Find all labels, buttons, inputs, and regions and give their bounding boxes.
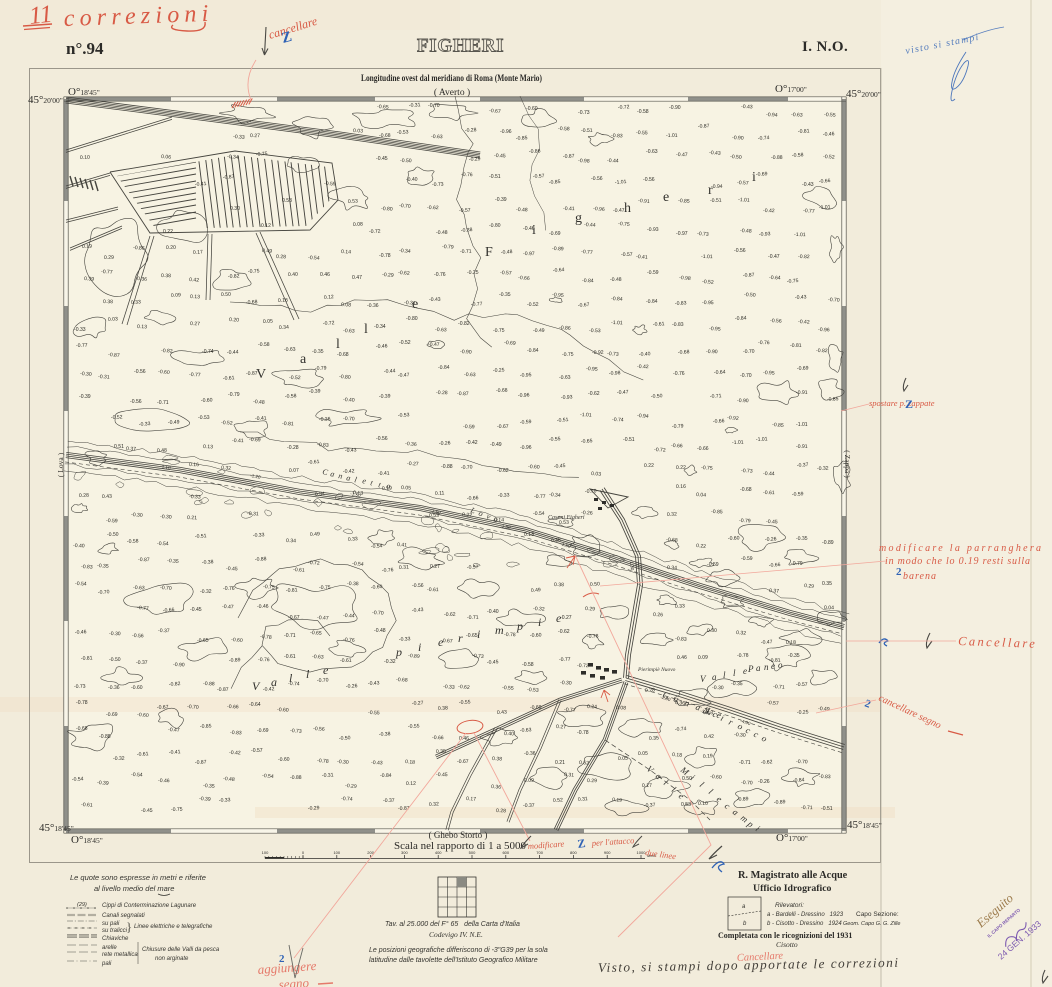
svg-text:-0.31: -0.31 bbox=[98, 374, 110, 381]
svg-text:-0.60: -0.60 bbox=[137, 712, 149, 719]
svg-text:-0.54: -0.54 bbox=[131, 772, 143, 778]
svg-text:-0.70: -0.70 bbox=[740, 373, 752, 379]
svg-text:-1.01: -1.01 bbox=[796, 422, 808, 428]
svg-text:-0.84: -0.84 bbox=[793, 777, 805, 784]
svg-text:0.37: 0.37 bbox=[126, 446, 136, 453]
svg-text:-0.71: -0.71 bbox=[739, 760, 751, 766]
svg-text:-0.70: -0.70 bbox=[98, 589, 110, 596]
svg-text:0.29: 0.29 bbox=[585, 606, 595, 613]
svg-text:-0.56: -0.56 bbox=[132, 633, 144, 639]
svg-text:-0.71: -0.71 bbox=[773, 684, 785, 691]
svg-text:45°18'45": 45°18'45" bbox=[39, 822, 74, 834]
svg-text:-0.89: -0.89 bbox=[229, 657, 241, 664]
svg-text:Completata con le ricognizioni: Completata con le ricognizioni del 1931 bbox=[718, 931, 852, 940]
svg-text:-0.33: -0.33 bbox=[139, 421, 151, 428]
svg-text:600: 600 bbox=[502, 850, 509, 855]
svg-text:-0.41: -0.41 bbox=[232, 438, 244, 444]
svg-text:0.52: 0.52 bbox=[579, 760, 589, 767]
svg-text:-0.66: -0.66 bbox=[819, 178, 831, 185]
svg-text:-0.33: -0.33 bbox=[189, 494, 201, 501]
svg-text:-0.75: -0.75 bbox=[787, 278, 799, 285]
svg-text:-0.60: -0.60 bbox=[371, 584, 383, 591]
svg-text:-0.41: -0.41 bbox=[378, 471, 390, 477]
svg-text:-0.30: -0.30 bbox=[109, 631, 121, 637]
svg-text:-0.25: -0.25 bbox=[493, 367, 505, 374]
svg-text:-0.56: -0.56 bbox=[134, 369, 146, 375]
svg-text:-0.29: -0.29 bbox=[382, 272, 394, 279]
svg-text:-0.54: -0.54 bbox=[157, 541, 169, 547]
svg-text:-0.77: -0.77 bbox=[189, 372, 201, 378]
svg-text:e: e bbox=[323, 663, 329, 677]
svg-text:-0.50: -0.50 bbox=[651, 393, 663, 400]
svg-text:-0.78: -0.78 bbox=[260, 634, 272, 641]
svg-text:-0.53: -0.53 bbox=[398, 412, 410, 419]
svg-text:0.29: 0.29 bbox=[804, 583, 815, 590]
svg-text:-0.81: -0.81 bbox=[790, 343, 802, 349]
svg-text:-0.64: -0.64 bbox=[249, 702, 261, 708]
svg-text:-0.38: -0.38 bbox=[347, 581, 359, 587]
svg-text:-0.61: -0.61 bbox=[308, 459, 320, 466]
svg-text:-0.71: -0.71 bbox=[284, 633, 296, 639]
svg-text:-0.89: -0.89 bbox=[552, 246, 564, 252]
svg-text:0.06: 0.06 bbox=[161, 154, 171, 161]
svg-text:-0.68: -0.68 bbox=[379, 133, 391, 139]
svg-text:0.03: 0.03 bbox=[108, 316, 118, 323]
svg-text:-0.81: -0.81 bbox=[798, 128, 810, 135]
svg-text:(29): (29) bbox=[77, 902, 87, 908]
svg-text:-0.25: -0.25 bbox=[467, 270, 479, 276]
svg-text:-0.70: -0.70 bbox=[741, 780, 753, 786]
svg-text:0.32: 0.32 bbox=[221, 465, 232, 472]
svg-text:0.05: 0.05 bbox=[263, 318, 273, 325]
svg-text:-0.35: -0.35 bbox=[731, 681, 743, 687]
svg-text:-0.48: -0.48 bbox=[436, 230, 448, 236]
svg-text:-0.84: -0.84 bbox=[582, 278, 594, 284]
svg-text:0.31: 0.31 bbox=[399, 564, 409, 571]
svg-text:-0.59: -0.59 bbox=[792, 491, 804, 498]
svg-text:-0.30: -0.30 bbox=[160, 514, 172, 521]
svg-text:-0.57: -0.57 bbox=[621, 252, 633, 258]
svg-text:-0.59: -0.59 bbox=[741, 556, 753, 562]
svg-text:Chiusure delle Valli da pesca: Chiusure delle Valli da pesca bbox=[142, 947, 220, 953]
svg-text:-0.88: -0.88 bbox=[99, 734, 111, 740]
svg-text:-0.65: -0.65 bbox=[377, 104, 389, 111]
svg-text:-0.94: -0.94 bbox=[711, 184, 723, 190]
svg-text:-0.31: -0.31 bbox=[409, 102, 421, 109]
svg-text:0.31: 0.31 bbox=[564, 772, 574, 779]
svg-text:a: a bbox=[712, 672, 717, 682]
svg-text:O°17'00": O°17'00" bbox=[775, 83, 807, 95]
svg-text:-0.37: -0.37 bbox=[797, 462, 809, 469]
svg-text:-0.35: -0.35 bbox=[796, 536, 808, 542]
svg-text:-0.51: -0.51 bbox=[581, 128, 593, 134]
svg-text:-0.82: -0.82 bbox=[161, 348, 173, 355]
svg-text:0.18: 0.18 bbox=[405, 759, 416, 766]
svg-text:0.07: 0.07 bbox=[289, 467, 299, 474]
svg-text:-0.49: -0.49 bbox=[533, 328, 545, 334]
svg-text:-0.54: -0.54 bbox=[262, 773, 274, 780]
svg-text:-0.75: -0.75 bbox=[701, 465, 713, 472]
svg-text:-0.85: -0.85 bbox=[772, 422, 784, 429]
svg-text:-0.66: -0.66 bbox=[713, 418, 725, 425]
svg-text:0.17: 0.17 bbox=[642, 783, 652, 789]
svg-text:-0.78: -0.78 bbox=[317, 758, 329, 765]
svg-text:-0.55: -0.55 bbox=[408, 723, 420, 730]
svg-text:-0.60: -0.60 bbox=[728, 535, 740, 542]
svg-text:-0.69: -0.69 bbox=[106, 712, 118, 718]
svg-text:0.53: 0.53 bbox=[348, 198, 358, 205]
svg-text:-0.35: -0.35 bbox=[167, 558, 179, 565]
svg-text:-0.61: -0.61 bbox=[137, 751, 149, 758]
svg-text:-0.52: -0.52 bbox=[399, 340, 411, 346]
svg-text:-0.55: -0.55 bbox=[459, 699, 471, 706]
svg-text:-0.66: -0.66 bbox=[227, 704, 239, 710]
svg-text:Capo Sezione:: Capo Sezione: bbox=[856, 911, 899, 918]
svg-text:0.05: 0.05 bbox=[401, 485, 411, 492]
svg-text:-0.91: -0.91 bbox=[638, 198, 650, 205]
svg-text:0.16: 0.16 bbox=[278, 297, 288, 304]
svg-text:arelle: arelle bbox=[102, 945, 117, 951]
svg-text:0.13: 0.13 bbox=[190, 294, 200, 300]
svg-text:-0.37: -0.37 bbox=[523, 803, 535, 809]
svg-text:-0.95: -0.95 bbox=[520, 372, 532, 379]
svg-text:-0.63: -0.63 bbox=[791, 112, 803, 119]
svg-text:-0.96: -0.96 bbox=[518, 392, 530, 399]
svg-text:-0.97: -0.97 bbox=[523, 251, 535, 257]
svg-text:modificare la parranghera: modificare la parranghera bbox=[879, 543, 1043, 554]
svg-text:0.10: 0.10 bbox=[698, 801, 708, 807]
svg-text:-0.77: -0.77 bbox=[803, 208, 815, 215]
svg-text:-0.91: -0.91 bbox=[796, 444, 808, 450]
svg-text:-0.40: -0.40 bbox=[487, 609, 499, 615]
svg-text:0.14: 0.14 bbox=[341, 249, 351, 256]
svg-text:-0.80: -0.80 bbox=[381, 206, 393, 213]
svg-text:-0.79: -0.79 bbox=[739, 518, 751, 524]
svg-text:-0.62: -0.62 bbox=[558, 629, 570, 635]
svg-text:-0.60: -0.60 bbox=[526, 106, 538, 112]
svg-text:-0.77: -0.77 bbox=[101, 269, 113, 276]
svg-text:-0.66: -0.66 bbox=[671, 443, 683, 449]
svg-text:-0.68: -0.68 bbox=[740, 487, 752, 493]
svg-text:-0.75: -0.75 bbox=[493, 328, 505, 334]
svg-text:-0.63: -0.63 bbox=[559, 375, 571, 381]
svg-text:0.42: 0.42 bbox=[704, 734, 714, 740]
svg-text:-0.85: -0.85 bbox=[678, 198, 690, 205]
svg-text:-0.43: -0.43 bbox=[429, 297, 441, 303]
svg-text:-0.38: -0.38 bbox=[461, 227, 473, 234]
svg-text:-0.79: -0.79 bbox=[228, 392, 240, 398]
svg-text:500: 500 bbox=[469, 850, 476, 855]
svg-text:-0.60: -0.60 bbox=[710, 774, 722, 781]
svg-text:-0.57: -0.57 bbox=[767, 700, 779, 707]
svg-text:-0.51: -0.51 bbox=[623, 437, 635, 443]
svg-text:-0.30: -0.30 bbox=[80, 371, 92, 378]
svg-text:F: F bbox=[485, 245, 493, 260]
svg-text:45°18'45": 45°18'45" bbox=[847, 819, 882, 831]
svg-text:-0.56: -0.56 bbox=[591, 176, 603, 182]
svg-text:-0.61: -0.61 bbox=[284, 654, 296, 660]
svg-text:h: h bbox=[624, 201, 631, 216]
svg-text:-0.83: -0.83 bbox=[230, 730, 242, 736]
svg-text:-0.37: -0.37 bbox=[383, 798, 395, 804]
svg-text:-1.01: -1.01 bbox=[794, 232, 806, 238]
svg-text:-0.72: -0.72 bbox=[654, 447, 666, 454]
svg-text:-0.86: -0.86 bbox=[559, 325, 571, 332]
svg-text:0.03: 0.03 bbox=[353, 128, 363, 135]
svg-text:0.38: 0.38 bbox=[103, 299, 113, 305]
svg-text:latitudine dalle tavolette del: latitudine dalle tavolette dell'Istituto… bbox=[369, 957, 538, 964]
svg-text:-0.69: -0.69 bbox=[530, 705, 542, 711]
svg-text:-0.90: -0.90 bbox=[737, 398, 749, 404]
svg-text:0.29: 0.29 bbox=[104, 255, 114, 261]
svg-text:FIGHERI: FIGHERI bbox=[417, 36, 504, 57]
svg-text:0.19: 0.19 bbox=[82, 244, 92, 250]
svg-text:0.30: 0.30 bbox=[707, 628, 717, 634]
svg-text:-0.57: -0.57 bbox=[796, 682, 808, 688]
svg-text:Z: Z bbox=[905, 397, 913, 411]
svg-text:e: e bbox=[663, 190, 669, 205]
svg-text:Cisotto: Cisotto bbox=[776, 940, 798, 949]
svg-text:0.30: 0.30 bbox=[230, 206, 240, 212]
svg-text:-0.66: -0.66 bbox=[467, 495, 479, 502]
svg-text:-0.38: -0.38 bbox=[379, 731, 391, 738]
svg-text:-0.63: -0.63 bbox=[431, 134, 443, 140]
svg-text:400: 400 bbox=[435, 850, 442, 855]
svg-text:-0.55: -0.55 bbox=[636, 130, 648, 136]
svg-text:0.08: 0.08 bbox=[341, 302, 351, 309]
svg-text:-0.43: -0.43 bbox=[371, 760, 383, 766]
svg-text:-0.71: -0.71 bbox=[710, 393, 722, 400]
svg-text:-0.45: -0.45 bbox=[487, 659, 499, 666]
svg-text:-0.30: -0.30 bbox=[712, 685, 724, 691]
svg-text:-0.75: -0.75 bbox=[248, 268, 260, 275]
svg-text:-0.60: -0.60 bbox=[277, 707, 289, 714]
svg-text:-0.42: -0.42 bbox=[229, 750, 241, 756]
svg-text:-0.88: -0.88 bbox=[290, 775, 302, 781]
svg-text:-0.53: -0.53 bbox=[527, 687, 539, 694]
svg-text:-0.27: -0.27 bbox=[412, 700, 424, 707]
svg-text:-0.58: -0.58 bbox=[558, 126, 570, 132]
svg-text:-0.63: -0.63 bbox=[284, 347, 296, 353]
svg-text:O°18'45": O°18'45" bbox=[71, 834, 103, 846]
svg-text:-0.70: -0.70 bbox=[343, 416, 355, 422]
svg-text:-0.76: -0.76 bbox=[382, 567, 394, 574]
svg-text:-0.75: -0.75 bbox=[256, 151, 268, 158]
svg-text:e: e bbox=[412, 297, 418, 312]
svg-text:-0.65: -0.65 bbox=[197, 638, 209, 644]
svg-text:i: i bbox=[752, 170, 756, 185]
svg-text:0.53: 0.53 bbox=[681, 802, 691, 808]
svg-text:-0.55: -0.55 bbox=[502, 685, 514, 692]
svg-text:-0.32: -0.32 bbox=[817, 466, 829, 472]
svg-text:-1.01: -1.01 bbox=[756, 436, 768, 443]
svg-text:-0.73: -0.73 bbox=[290, 728, 302, 735]
svg-text:0.51: 0.51 bbox=[114, 444, 124, 450]
svg-text:-0.88: -0.88 bbox=[441, 464, 453, 470]
svg-text:Tav. al 25.000 del F° 65 del: Tav. al 25.000 del F° 65 della Carta d'I… bbox=[385, 920, 520, 928]
svg-text:-0.44: -0.44 bbox=[227, 349, 239, 356]
svg-text:-0.88: -0.88 bbox=[255, 556, 267, 563]
svg-text:-0.78: -0.78 bbox=[504, 632, 516, 638]
svg-text:-0.60: -0.60 bbox=[158, 369, 170, 376]
svg-text:0.38: 0.38 bbox=[554, 582, 564, 588]
svg-text:-0.26: -0.26 bbox=[765, 536, 777, 543]
svg-text:-0.83: -0.83 bbox=[675, 636, 687, 643]
svg-text:-0.76: -0.76 bbox=[434, 272, 446, 278]
svg-text:-0.83: -0.83 bbox=[819, 774, 831, 780]
svg-text:-0.70: -0.70 bbox=[160, 585, 172, 592]
svg-text:-1.01: -1.01 bbox=[611, 320, 623, 326]
svg-text:-0.63: -0.63 bbox=[133, 585, 145, 591]
svg-text:-0.86: -0.86 bbox=[133, 245, 145, 252]
svg-text:-1.01: -1.01 bbox=[615, 179, 627, 186]
svg-text:-0.92: -0.92 bbox=[592, 350, 604, 356]
svg-text:-0.54: -0.54 bbox=[352, 561, 364, 568]
svg-text:-0.96: -0.96 bbox=[520, 445, 532, 451]
svg-text:-0.54: -0.54 bbox=[75, 581, 87, 587]
svg-text:0.40: 0.40 bbox=[288, 272, 298, 278]
svg-text:-0.41: -0.41 bbox=[169, 749, 181, 756]
svg-text:-0.56: -0.56 bbox=[643, 177, 655, 183]
svg-text:-0.62: -0.62 bbox=[497, 468, 509, 474]
svg-text:-0.50: -0.50 bbox=[400, 158, 412, 164]
svg-text:-0.84: -0.84 bbox=[646, 299, 658, 305]
svg-text:-0.31: -0.31 bbox=[322, 772, 334, 779]
svg-text:-0.52: -0.52 bbox=[111, 414, 123, 421]
svg-text:-0.83: -0.83 bbox=[675, 300, 687, 307]
svg-text:-0.34: -0.34 bbox=[227, 154, 239, 161]
svg-text:-0.70: -0.70 bbox=[461, 464, 473, 471]
svg-text:-0.75: -0.75 bbox=[263, 584, 275, 591]
svg-text:0.13: 0.13 bbox=[524, 532, 534, 538]
svg-text:-0.77: -0.77 bbox=[564, 707, 576, 714]
svg-text:i: i bbox=[477, 627, 480, 641]
svg-text:-0.87: -0.87 bbox=[743, 272, 755, 279]
svg-text:-0.71: -0.71 bbox=[157, 400, 169, 406]
svg-text:0.20: 0.20 bbox=[229, 317, 239, 324]
svg-text:-0.84: -0.84 bbox=[438, 365, 450, 371]
svg-text:0.49: 0.49 bbox=[262, 248, 272, 255]
svg-text:-0.37: -0.37 bbox=[136, 660, 148, 666]
svg-text:-0.62: -0.62 bbox=[427, 205, 439, 211]
svg-text:-0.62: -0.62 bbox=[761, 759, 773, 766]
svg-text:Rilevatori:: Rilevatori: bbox=[775, 902, 804, 909]
svg-text:spostare p. zappate: spostare p. zappate bbox=[869, 398, 935, 408]
svg-text:-0.94: -0.94 bbox=[637, 413, 649, 420]
svg-text:-0.48: -0.48 bbox=[374, 628, 386, 634]
svg-text:-0.35: -0.35 bbox=[97, 563, 109, 570]
svg-text:-0.85: -0.85 bbox=[711, 509, 723, 515]
svg-text:0.13: 0.13 bbox=[203, 444, 213, 450]
svg-text:0.22: 0.22 bbox=[676, 465, 686, 471]
svg-text:-0.34: -0.34 bbox=[549, 492, 561, 499]
svg-text:a: a bbox=[271, 675, 277, 689]
svg-text:o: o bbox=[778, 660, 783, 670]
svg-text:-0.46: -0.46 bbox=[823, 131, 835, 138]
svg-text:-0.87: -0.87 bbox=[195, 759, 207, 766]
svg-text:0.38: 0.38 bbox=[438, 705, 448, 712]
svg-text:0.28: 0.28 bbox=[496, 808, 506, 814]
svg-text:-0.64: -0.64 bbox=[714, 369, 726, 376]
svg-text:-0.73: -0.73 bbox=[432, 182, 444, 188]
svg-text:0.48: 0.48 bbox=[157, 448, 167, 454]
svg-text:e: e bbox=[743, 666, 747, 676]
svg-text:-0.27: -0.27 bbox=[407, 461, 419, 467]
svg-text:-0.59: -0.59 bbox=[647, 270, 659, 276]
svg-text:-0.83: -0.83 bbox=[672, 322, 684, 328]
svg-text:-0.68: -0.68 bbox=[666, 537, 678, 544]
svg-text:pali: pali bbox=[101, 961, 112, 967]
svg-text:-0.77: -0.77 bbox=[534, 494, 546, 500]
svg-text:-0.89: -0.89 bbox=[774, 799, 786, 806]
svg-text:0.11: 0.11 bbox=[435, 490, 445, 497]
svg-text:g: g bbox=[575, 211, 582, 226]
svg-text:-0.32: -0.32 bbox=[384, 659, 396, 665]
svg-text:-0.47: -0.47 bbox=[398, 372, 410, 379]
svg-text:0.18: 0.18 bbox=[786, 640, 796, 646]
svg-text:-0.28: -0.28 bbox=[287, 445, 299, 451]
svg-text:-0.93: -0.93 bbox=[647, 227, 659, 233]
svg-text:-0.76: -0.76 bbox=[673, 371, 685, 377]
svg-text:-0.81: -0.81 bbox=[282, 421, 294, 427]
svg-text:-0.39: -0.39 bbox=[495, 197, 507, 203]
svg-text:Cancellare: Cancellare bbox=[958, 634, 1038, 651]
svg-text:-0.78: -0.78 bbox=[577, 730, 589, 736]
svg-text:-0.45: -0.45 bbox=[190, 607, 202, 613]
svg-text:-0.66: -0.66 bbox=[432, 735, 444, 741]
svg-text:-0.33: -0.33 bbox=[498, 492, 510, 499]
svg-text:-0.39: -0.39 bbox=[309, 388, 321, 395]
svg-text:0.39: 0.39 bbox=[84, 276, 94, 283]
svg-text:-0.69: -0.69 bbox=[257, 728, 269, 734]
svg-text:0.12: 0.12 bbox=[406, 781, 416, 787]
svg-text:-0.61: -0.61 bbox=[81, 802, 93, 809]
svg-text:( Ghebo Storto ): ( Ghebo Storto ) bbox=[429, 830, 488, 840]
svg-text:O°17'00": O°17'00" bbox=[776, 832, 808, 844]
svg-text:0.34: 0.34 bbox=[279, 324, 289, 331]
svg-text:0.04: 0.04 bbox=[824, 605, 834, 611]
svg-text:-0.67: -0.67 bbox=[288, 615, 300, 621]
svg-text:-0.98: -0.98 bbox=[679, 275, 691, 282]
svg-text:Le posizioni geografiche diffe: Le posizioni geografiche differiscono di… bbox=[369, 947, 548, 954]
svg-text:-0.86: -0.86 bbox=[529, 148, 541, 155]
svg-text:-0.87: -0.87 bbox=[108, 352, 120, 359]
svg-text:-0.33: -0.33 bbox=[219, 797, 231, 804]
svg-text:-0.92: -0.92 bbox=[727, 415, 739, 422]
svg-text:( Lova ): ( Lova ) bbox=[56, 452, 65, 477]
svg-text:-0.78: -0.78 bbox=[737, 653, 749, 659]
svg-text:0.27: 0.27 bbox=[190, 321, 200, 327]
svg-text:0.38: 0.38 bbox=[492, 756, 502, 763]
svg-text:-0.85: -0.85 bbox=[200, 723, 212, 730]
svg-text:-0.40: -0.40 bbox=[73, 543, 85, 549]
svg-text:-0.63: -0.63 bbox=[343, 328, 355, 335]
svg-text:-0.76: -0.76 bbox=[343, 637, 355, 644]
svg-text:-0.32: -0.32 bbox=[200, 589, 212, 595]
svg-text:-0.95: -0.95 bbox=[709, 326, 721, 333]
svg-text:-0.47: -0.47 bbox=[768, 254, 780, 260]
svg-text:-0.80: -0.80 bbox=[406, 316, 418, 322]
svg-text:-0.87: -0.87 bbox=[457, 391, 469, 397]
svg-text:-0.39: -0.39 bbox=[199, 796, 211, 803]
svg-text:a: a bbox=[756, 663, 761, 673]
svg-text:-0.44: -0.44 bbox=[607, 158, 619, 164]
svg-text:Codevigo IV. N.E.: Codevigo IV. N.E. bbox=[429, 930, 483, 939]
svg-text:l: l bbox=[336, 337, 340, 352]
svg-text:-0.85: -0.85 bbox=[549, 179, 561, 186]
svg-text:-0.87: -0.87 bbox=[217, 687, 229, 693]
svg-text:-0.85: -0.85 bbox=[516, 135, 528, 142]
